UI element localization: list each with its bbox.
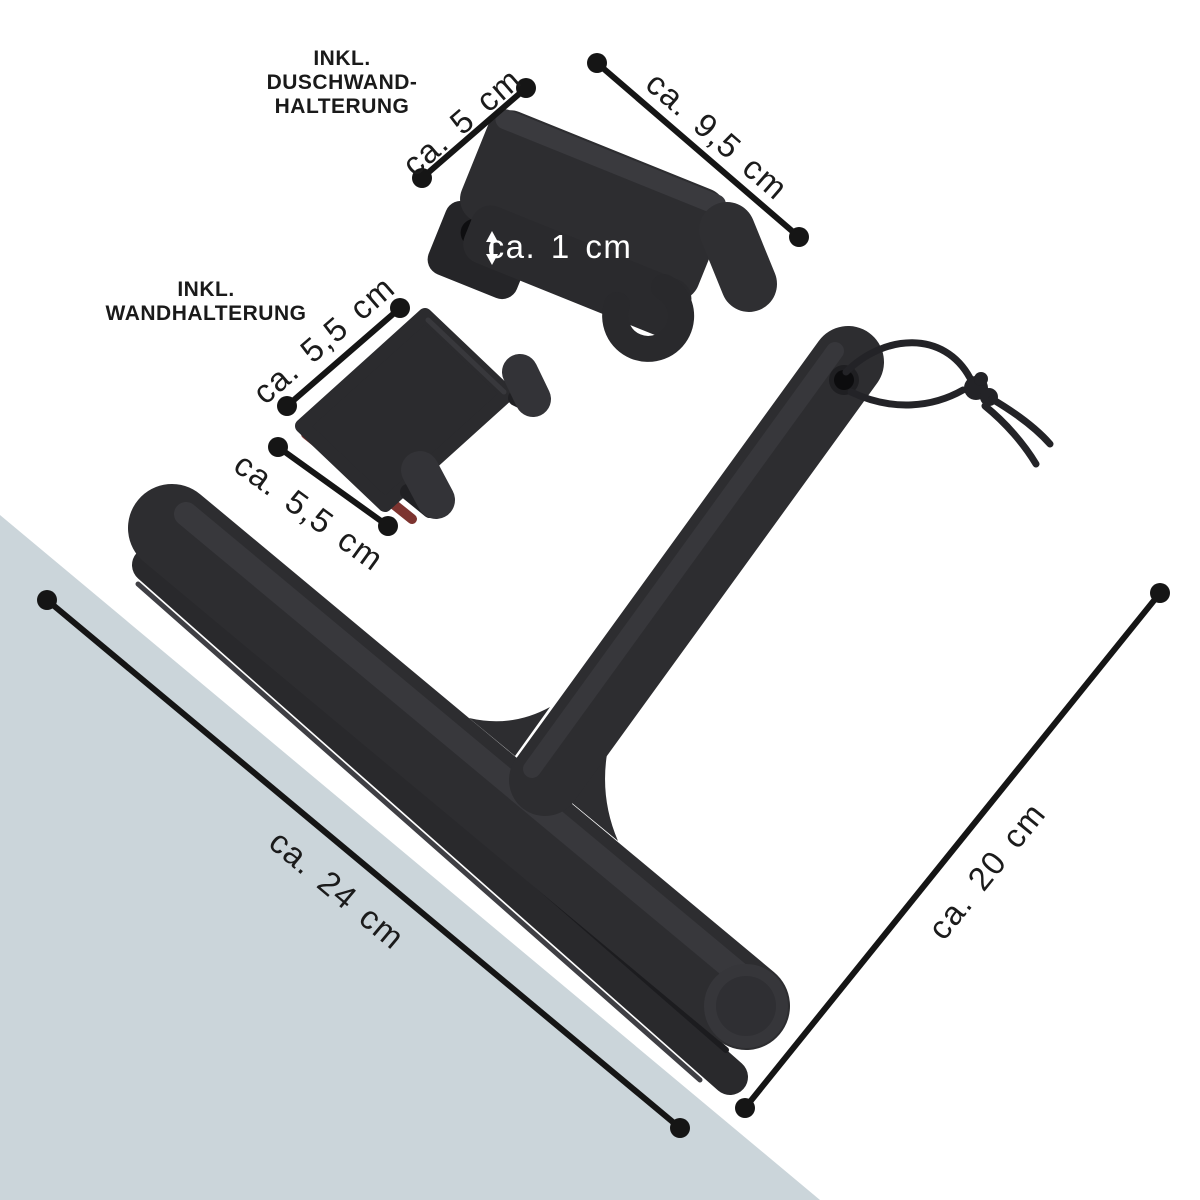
clip-right-hook (727, 230, 749, 284)
photo-canvas (0, 0, 1200, 1200)
dimension-dot (268, 437, 288, 457)
label-line: WANDHALTERUNG (106, 302, 307, 326)
included-wall-holder-label: INKL. WANDHALTERUNG (106, 278, 307, 326)
dimension-dot (1150, 583, 1170, 603)
label-line: INKL. (267, 47, 418, 71)
cord-knot (974, 372, 988, 386)
dimension-dot (789, 227, 809, 247)
dimension-label-1cm: ca. 1 cm (488, 228, 633, 266)
handle-bar (545, 362, 848, 780)
label-line: HALTERUNG (267, 95, 418, 119)
product-dimension-photo: INKL. DUSCHWAND- HALTERUNG INKL. WANDHAL… (0, 0, 1200, 1200)
dimension-line-20cm (735, 583, 1170, 1118)
handle-top-face (532, 351, 835, 769)
holder-lower-hook (420, 470, 436, 500)
dimension-dot (37, 590, 57, 610)
dimension-dot (735, 1098, 755, 1118)
dimension-dot (587, 53, 607, 73)
label-line: INKL. (106, 278, 307, 302)
label-line: DUSCHWAND- (267, 71, 418, 95)
dimension-dot (378, 516, 398, 536)
squeegee-handle (469, 351, 859, 841)
holder-upper-hook (520, 372, 533, 399)
included-shower-door-holder-label: INKL. DUSCHWAND- HALTERUNG (267, 47, 418, 119)
blade-end-cap-inner (716, 976, 776, 1036)
dimension-dot (670, 1118, 690, 1138)
